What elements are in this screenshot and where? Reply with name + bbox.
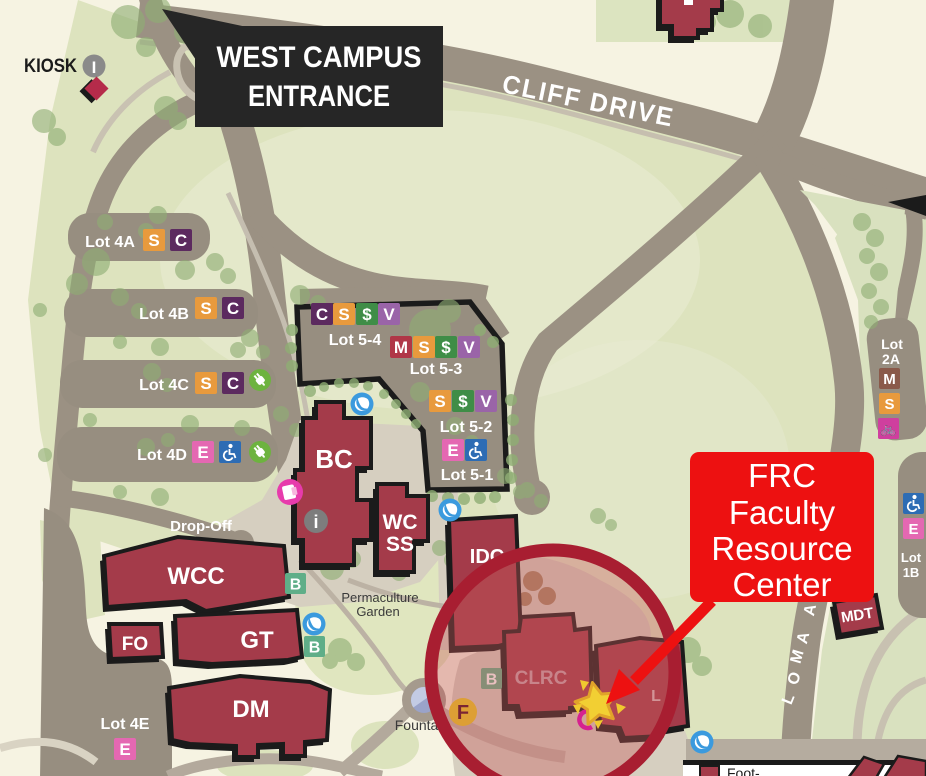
svg-text:WCC: WCC: [167, 563, 224, 590]
svg-text:Lot 4D: Lot 4D: [137, 447, 187, 464]
svg-text:KIOSK: KIOSK: [24, 56, 77, 77]
svg-text:Lot 5-4: Lot 5-4: [329, 332, 382, 349]
svg-text:Lot: Lot: [881, 336, 903, 352]
svg-text:B: B: [290, 576, 302, 593]
svg-text:C: C: [175, 231, 187, 250]
svg-text:Lot 5-1: Lot 5-1: [441, 467, 494, 484]
svg-text:Garden: Garden: [356, 604, 399, 619]
svg-text:Faculty: Faculty: [729, 494, 836, 531]
svg-text:C: C: [227, 374, 239, 393]
svg-text:Foot-: Foot-: [727, 765, 760, 776]
svg-text:E: E: [908, 521, 918, 538]
svg-text:🚲: 🚲: [880, 421, 896, 436]
svg-text:Resource: Resource: [711, 530, 852, 567]
svg-text:S: S: [148, 231, 159, 250]
svg-text:FO: FO: [122, 634, 148, 655]
svg-text:FRC: FRC: [748, 457, 816, 494]
svg-text:S: S: [884, 396, 894, 413]
svg-text:S: S: [200, 299, 211, 318]
svg-text:C: C: [316, 305, 328, 324]
svg-text:$: $: [458, 392, 468, 411]
svg-text:S: S: [200, 374, 211, 393]
svg-text:2A: 2A: [882, 351, 900, 367]
svg-text:Lot 4B: Lot 4B: [139, 306, 189, 323]
svg-text:C: C: [227, 299, 239, 318]
svg-text:$: $: [441, 338, 451, 357]
svg-text:F: F: [457, 702, 469, 724]
svg-text:$: $: [362, 305, 372, 324]
svg-text:S: S: [418, 338, 429, 357]
svg-text:M: M: [394, 338, 408, 357]
svg-text:SS: SS: [386, 533, 414, 556]
svg-text:E: E: [119, 740, 130, 759]
svg-text:Drop-Off: Drop-Off: [170, 518, 233, 535]
svg-text:BC: BC: [315, 444, 353, 474]
svg-text:Lot 4C: Lot 4C: [139, 377, 189, 394]
svg-text:Lot 4E: Lot 4E: [101, 716, 150, 733]
svg-text:M: M: [883, 371, 896, 388]
svg-text:E: E: [197, 443, 208, 462]
svg-text:V: V: [383, 305, 395, 324]
svg-text:S: S: [338, 305, 349, 324]
svg-text:E: E: [447, 441, 458, 460]
svg-text:Lot 5-3: Lot 5-3: [410, 361, 463, 378]
svg-text:Lot: Lot: [901, 550, 922, 565]
svg-text:Permaculture: Permaculture: [341, 590, 418, 605]
svg-text:ENTRANCE: ENTRANCE: [248, 80, 390, 113]
svg-text:V: V: [463, 338, 475, 357]
svg-text:Center: Center: [732, 566, 831, 603]
svg-text:GT: GT: [240, 627, 274, 654]
svg-text:Lot 5-2: Lot 5-2: [440, 419, 493, 436]
svg-text:B: B: [309, 639, 321, 656]
svg-text:I: I: [92, 58, 97, 77]
svg-text:WEST CAMPUS: WEST CAMPUS: [217, 41, 422, 74]
svg-text:S: S: [434, 392, 445, 411]
svg-text:V: V: [480, 392, 492, 411]
svg-text:i: i: [313, 512, 318, 532]
svg-text:DM: DM: [232, 696, 269, 723]
svg-text:1B: 1B: [903, 565, 920, 580]
svg-text:WC: WC: [383, 511, 418, 534]
svg-text:Lot 4A: Lot 4A: [85, 234, 135, 251]
